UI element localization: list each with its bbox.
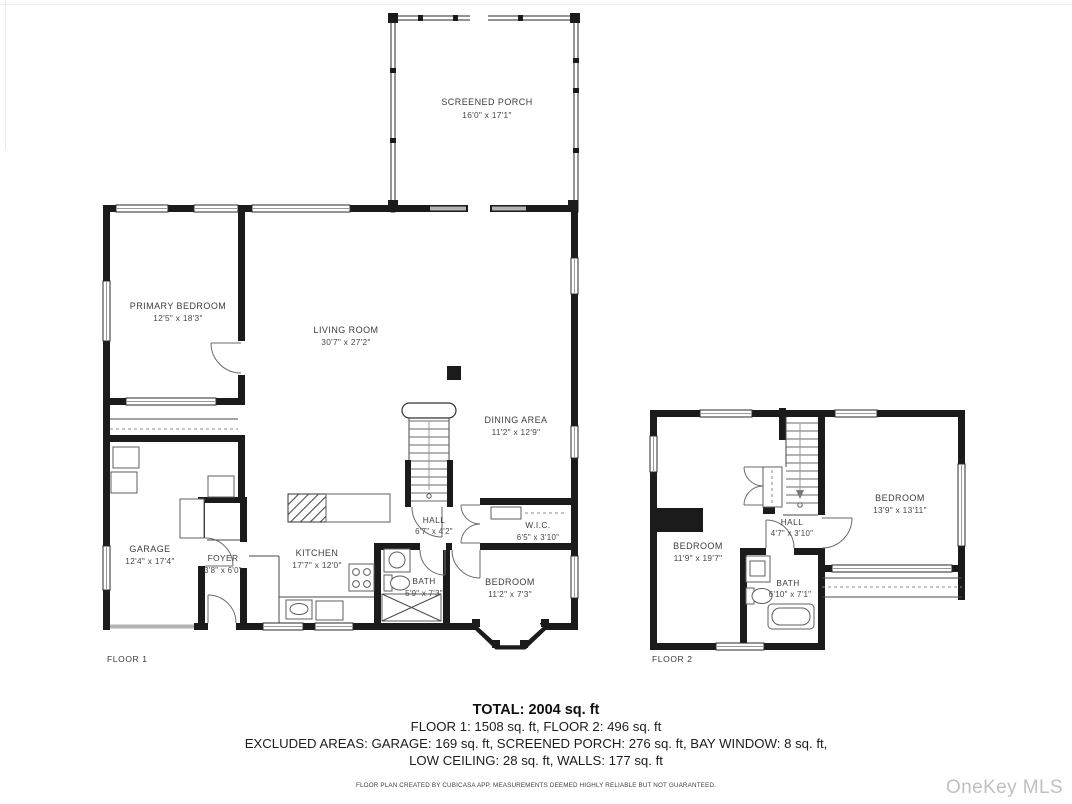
room-dims-bath-f1: 5'9" x 7'3" [405, 589, 443, 598]
floor2-low-ceiling-edge [822, 578, 962, 597]
room-label-bedroom-f2-left: BEDROOM [673, 541, 723, 551]
room-dims-hall-f1: 6'7" x 4'2" [415, 527, 453, 536]
room-dims-bath-f2: 6'10" x 7'1" [769, 590, 812, 599]
stove [349, 564, 374, 591]
room-label-garage: GARAGE [129, 544, 170, 554]
room-dims-garage: 12'4" x 17'4" [125, 556, 174, 566]
room-label-primary-bedroom: PRIMARY BEDROOM [130, 301, 226, 311]
floor2-label: FLOOR 2 [652, 654, 693, 664]
floor2-plan: BEDROOM 11'9" x 19'7" HALL 4'7" x 3'10" … [650, 408, 965, 664]
floor1-plan: SCREENED PORCH 16'0" x 17'1" PRIMARY BED… [103, 13, 580, 664]
room-dims-dining-area: 11'2" x 12'9" [492, 427, 541, 437]
wic-interior [491, 507, 567, 519]
page-edge-lines [0, 0, 1072, 150]
room-dims-bedroom-f1: 11'2" x 7'3" [488, 589, 532, 599]
room-label-wic: W.I.C. [525, 520, 550, 530]
bay-window [472, 619, 549, 648]
room-dims-living-room: 30'7" x 27'2" [321, 337, 370, 347]
room-dims-primary-bedroom: 12'5" x 18'3" [153, 313, 202, 323]
room-label-bath-f2: BATH [776, 578, 799, 588]
room-label-kitchen: KITCHEN [296, 548, 339, 558]
room-dims-foyer: 3'8" x 6'0" [204, 566, 242, 575]
floor1-label: FLOOR 1 [107, 654, 148, 664]
garage-fixtures [111, 447, 240, 540]
room-dims-screened-porch: 16'0" x 17'1" [462, 110, 511, 120]
room-dims-bedroom-f2-left: 11'9" x 19'7" [674, 553, 723, 563]
floor2-room-labels: BEDROOM 11'9" x 19'7" HALL 4'7" x 3'10" … [673, 493, 927, 599]
room-label-dining-area: DINING AREA [485, 415, 548, 425]
garage-door [110, 623, 194, 630]
room-label-hall-f2: HALL [781, 517, 804, 527]
room-label-bedroom-f1: BEDROOM [485, 577, 535, 587]
room-dims-hall-f2: 4'7" x 3'10" [771, 529, 814, 538]
room-dims-wic: 6'5" x 3'10" [517, 533, 560, 542]
floor2-closet [744, 467, 782, 507]
summary-disclaimer: FLOOR PLAN CREATED BY CUBICASA APP. MEAS… [356, 782, 716, 789]
room-label-hall-f1: HALL [423, 515, 446, 525]
floor-plan-svg: SCREENED PORCH 16'0" x 17'1" PRIMARY BED… [0, 0, 1072, 804]
summary-excluded-line2: LOW CEILING: 28 sq. ft, WALLS: 177 sq. f… [409, 753, 663, 768]
room-dims-kitchen: 17'7" x 12'0" [292, 560, 341, 570]
summary-floors: FLOOR 1: 1508 sq. ft, FLOOR 2: 496 sq. f… [411, 719, 662, 734]
kitchen-island [288, 494, 390, 522]
summary-total: TOTAL: 2004 sq. ft [473, 702, 600, 718]
summary-excluded-line1: EXCLUDED AREAS: GARAGE: 169 sq. ft, SCRE… [245, 736, 828, 751]
room-label-foyer: FOYER [208, 553, 239, 563]
floor1-stairs [402, 403, 456, 507]
watermark-onekey-mls: OneKey MLS [946, 777, 1063, 798]
floor2-stairs [783, 417, 818, 515]
floor-plan-page: SCREENED PORCH 16'0" x 17'1" PRIMARY BED… [0, 0, 1072, 804]
area-summary: TOTAL: 2004 sq. ft FLOOR 1: 1508 sq. ft,… [245, 702, 828, 789]
room-label-screened-porch: SCREENED PORCH [441, 97, 532, 107]
room-dims-bedroom-f2-right: 13'9" x 13'11" [873, 505, 927, 515]
low-ceiling-strip [110, 419, 238, 429]
room-label-living-room: LIVING ROOM [314, 325, 379, 335]
room-label-bath-f1: BATH [412, 576, 435, 586]
solid-black-block [655, 508, 703, 532]
room-label-bedroom-f2-right: BEDROOM [875, 493, 925, 503]
